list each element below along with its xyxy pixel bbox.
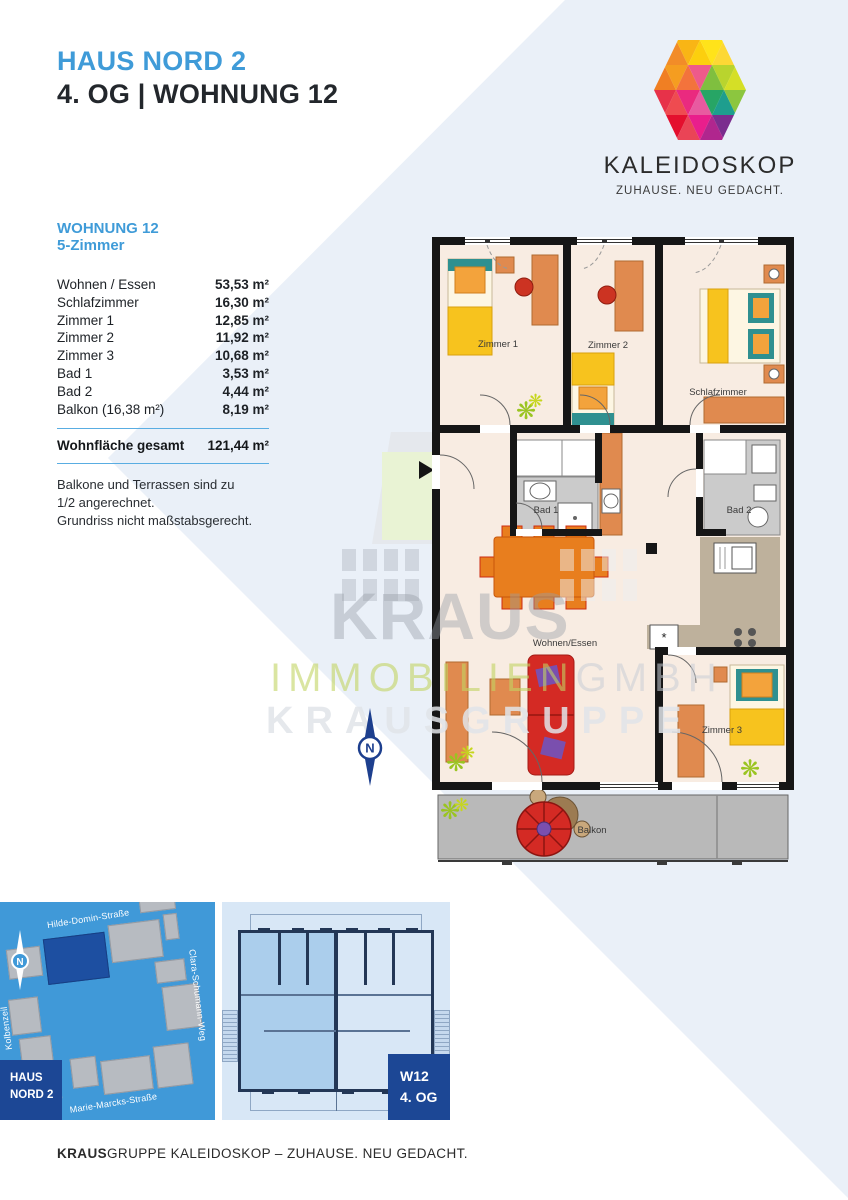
expose-page: HAUS NORD 2 4. OG | WOHNUNG 12 [0,0,848,1200]
window-tick [298,1090,310,1094]
apartment-info-panel: WOHNUNG 12 5-Zimmer Wohnen / Essen53,53 … [57,220,269,530]
area-row: Balkon (16,38 m²)8,19 m² [57,401,269,419]
footnote-line: 1/2 angerechnet. [57,494,269,512]
area-row: Zimmer 211,92 m² [57,329,269,347]
interior-line [241,994,334,996]
badge-line: W12 [400,1066,450,1087]
building [138,902,176,913]
footnote-line: Grundriss nicht maßstabsgerecht. [57,512,269,530]
svg-text:❋: ❋ [460,743,475,763]
floor-overview-map: W12 4. OG [222,902,450,1120]
bad2-room [704,440,780,535]
site-map-n-label: N [16,957,23,968]
footer-text: GRUPPE KALEIDOSKOP – ZUHAUSE. NEU GEDACH… [107,1146,468,1161]
stairs [222,1010,238,1062]
area-row: Zimmer 310,68 m² [57,347,269,365]
window-tick [406,928,418,932]
balcony-divider [336,1091,337,1111]
building [70,1056,99,1089]
interior-wall [278,933,281,985]
label-schlafzimmer: Schlafzimmer [689,387,747,398]
total-row: Wohnfläche gesamt121,44 m² [57,438,269,453]
badge-line: HAUS [10,1070,62,1087]
area-label: Bad 1 [57,365,92,383]
area-row: Bad 24,44 m² [57,383,269,401]
building [153,1042,194,1088]
interior-line [338,994,431,996]
window-tick [342,1090,354,1094]
north-compass-icon: N [350,708,390,793]
building [108,919,164,963]
floorplan: * [432,237,794,870]
building [154,958,186,983]
interior-line [264,1030,336,1032]
center-wall [334,930,338,1092]
label-wohnen-essen: Wohnen/Essen [533,638,597,649]
window-tick [258,928,270,932]
street-marie-marcks: Marie-Marcks-Straße [69,1091,158,1115]
footer-line: KRAUSGRUPPE KALEIDOSKOP – ZUHAUSE. NEU G… [57,1146,468,1161]
area-value: 12,85 m² [215,312,269,330]
total-value: 121,44 m² [207,438,269,453]
area-row: Schlafzimmer16,30 m² [57,294,269,312]
label-balkon: Balkon [577,825,606,836]
site-map-badge: HAUS NORD 2 [0,1060,62,1120]
building [8,996,42,1035]
area-label: Bad 2 [57,383,92,401]
logo-tagline: ZUHAUSE. NEU GEDACHT. [592,185,808,197]
building [163,913,180,941]
interior-wall [364,933,367,985]
svg-text:❋: ❋ [740,756,760,783]
area-value: 10,68 m² [215,347,269,365]
bad1-room [516,440,598,535]
window-tick [292,928,304,932]
floor-map-badge: W12 4. OG [388,1054,450,1120]
area-value: 11,92 m² [216,329,269,347]
interior-wall [306,933,309,985]
badge-line: NORD 2 [10,1087,62,1104]
building-haus-nord-2 [43,932,110,985]
site-map-north-icon: N [8,930,32,997]
window-tick [346,928,358,932]
project-title: HAUS NORD 2 [57,46,338,77]
svg-text:❋: ❋ [528,391,543,411]
label-bad1: Bad 1 [534,505,559,516]
area-label: Wohnen / Essen [57,276,156,294]
area-value: 3,53 m² [222,365,269,383]
apartment-subtitle: 5-Zimmer [57,237,269,254]
page-header: HAUS NORD 2 4. OG | WOHNUNG 12 [57,46,338,110]
window-tick [378,928,390,932]
site-map: Hilde-Domin-Straße Clara-Schumann-Weg Ko… [0,902,215,1120]
kaleidoskop-hexagon-icon [652,38,748,142]
area-label: Zimmer 1 [57,312,114,330]
area-value: 8,19 m² [222,401,269,419]
divider-line [57,428,269,429]
kaleidoskop-logo: KALEIDOSKOP ZUHAUSE. NEU GEDACHT. [592,38,808,197]
area-label: Balkon (16,38 m²) [57,401,164,419]
area-value: 16,30 m² [215,294,269,312]
unit-title: 4. OG | WOHNUNG 12 [57,79,338,110]
logo-brand-text: KALEIDOSKOP [592,152,808,180]
compass-n-label: N [365,741,374,756]
label-zimmer3: Zimmer 3 [702,725,742,736]
label-bad2: Bad 2 [727,505,752,516]
footer-brand-bold: KRAUS [57,1146,107,1161]
kitchen-marker: * [661,630,666,645]
area-label: Zimmer 2 [57,329,114,347]
building [100,1055,154,1095]
balcony [438,795,788,865]
footnotes: Balkone und Terrassen sind zu 1/2 angere… [57,476,269,530]
schlafzimmer-furniture [700,265,784,423]
svg-text:❋: ❋ [454,795,469,815]
label-zimmer1: Zimmer 1 [478,339,518,350]
area-value: 53,53 m² [215,276,269,294]
divider-line [57,463,269,464]
area-label: Schlafzimmer [57,294,139,312]
window-tick [320,928,332,932]
balcony-outline [250,914,422,931]
interior-line [338,1030,410,1032]
badge-line: 4. OG [400,1087,450,1108]
area-row: Wohnen / Essen53,53 m² [57,276,269,294]
area-label: Zimmer 3 [57,347,114,365]
area-row: Zimmer 112,85 m² [57,312,269,330]
hall-utility-column [600,433,622,535]
label-zimmer2: Zimmer 2 [588,340,628,351]
area-value: 4,44 m² [222,383,269,401]
footnote-line: Balkone und Terrassen sind zu [57,476,269,494]
apartment-title: WOHNUNG 12 [57,220,269,237]
total-label: Wohnfläche gesamt [57,438,184,453]
interior-wall [392,933,395,985]
window-tick [262,1090,274,1094]
area-row: Bad 13,53 m² [57,365,269,383]
